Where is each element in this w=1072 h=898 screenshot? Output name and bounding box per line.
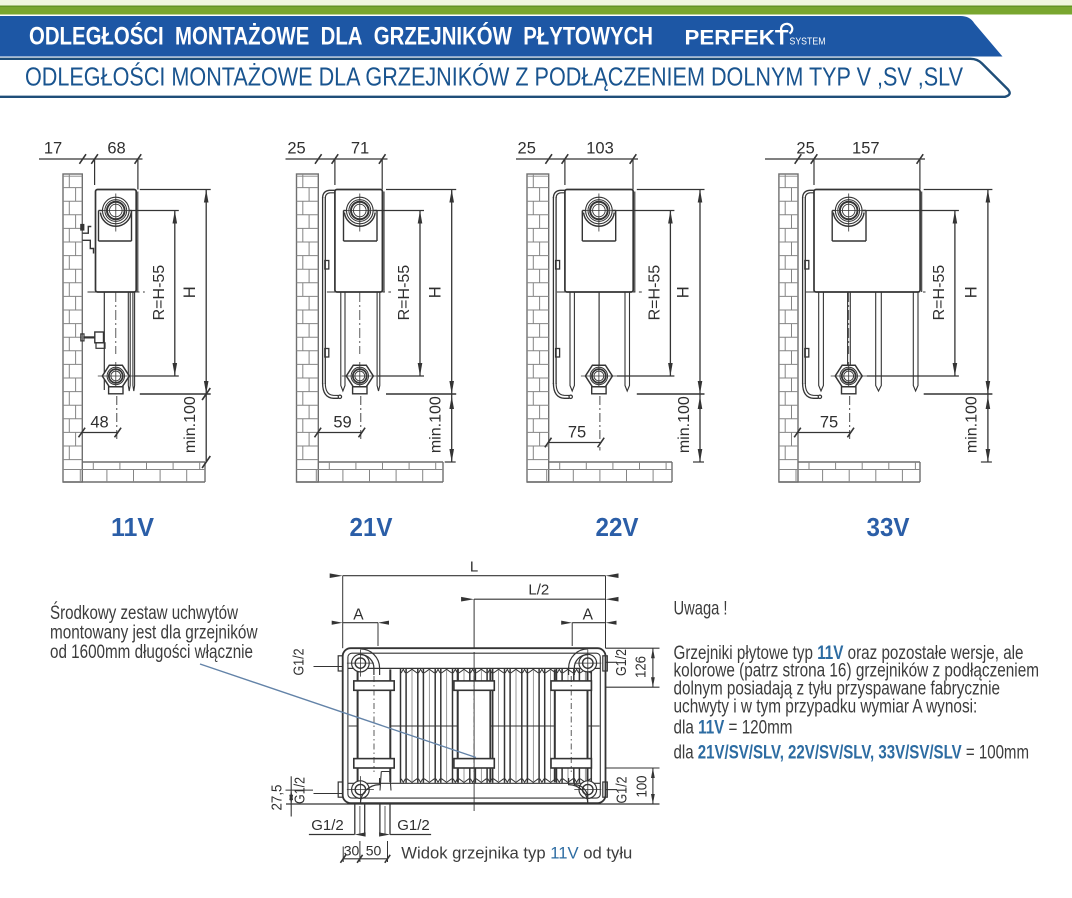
svg-text:ODLEGŁOŚCI MONTAŻOWE DLA GRZEJ: ODLEGŁOŚCI MONTAŻOWE DLA GRZEJNIKÓW Z PO…	[25, 61, 964, 91]
svg-text:A: A	[583, 607, 594, 624]
svg-text:min.100: min.100	[182, 396, 199, 453]
svg-text:G1/2: G1/2	[311, 817, 344, 834]
svg-text:Uwaga !: Uwaga !	[674, 598, 728, 620]
svg-text:50: 50	[366, 843, 382, 859]
svg-text:min.100: min.100	[964, 396, 981, 453]
svg-text:min.100: min.100	[428, 396, 445, 453]
svg-text:48: 48	[90, 414, 108, 432]
svg-text:L: L	[470, 559, 478, 576]
svg-text:27,5: 27,5	[270, 785, 286, 811]
svg-text:H: H	[675, 286, 693, 298]
svg-text:SYSTEM: SYSTEM	[790, 35, 826, 47]
svg-text:11V: 11V	[111, 512, 155, 542]
svg-text:PERFEKT: PERFEKT	[685, 25, 790, 50]
svg-text:71: 71	[351, 140, 369, 158]
svg-text:ODLEGŁOŚCI MONTAŻOWE DLA GR: ODLEGŁOŚCI MONTAŻOWE DLA GRZEJNIKÓW PŁYT…	[29, 20, 653, 50]
svg-text:22V: 22V	[596, 512, 640, 542]
svg-text:68: 68	[107, 140, 125, 158]
svg-text:uchwyty i w tym przypadku wymi: uchwyty i w tym przypadku wymiar A wynos…	[674, 697, 978, 718]
svg-text:75: 75	[820, 414, 838, 432]
svg-text:33V: 33V	[867, 512, 911, 542]
svg-text:H: H	[181, 286, 199, 298]
svg-text:21V: 21V	[350, 512, 394, 542]
svg-text:25: 25	[518, 140, 536, 158]
svg-text:75: 75	[568, 424, 586, 442]
svg-text:157: 157	[852, 140, 880, 158]
svg-text:17: 17	[44, 140, 62, 158]
svg-text:R=H-55: R=H-55	[396, 265, 413, 321]
svg-text:H: H	[963, 286, 981, 298]
svg-text:R=H-55: R=H-55	[931, 265, 948, 321]
svg-text:Środkowy zestaw uchwytów: Środkowy zestaw uchwytów	[50, 602, 238, 624]
svg-text:100: 100	[634, 776, 650, 798]
svg-text:126: 126	[634, 656, 650, 678]
svg-text:dla 11V = 120mm: dla 11V = 120mm	[674, 718, 793, 739]
svg-text:od 1600mm długości włącznie: od 1600mm długości włącznie	[50, 642, 253, 663]
svg-text:G1/2: G1/2	[397, 817, 430, 834]
svg-text:103: 103	[586, 140, 614, 158]
svg-text:H: H	[426, 286, 444, 298]
svg-text:Widok grzejnika typ 11V od tył: Widok grzejnika typ 11V od tyłu	[401, 845, 632, 863]
svg-text:25: 25	[796, 140, 814, 158]
svg-text:30: 30	[344, 843, 360, 859]
svg-text:L/2: L/2	[528, 582, 549, 599]
svg-text:dla 21V/SV/SLV, 22V/SV/SLV, 33: dla 21V/SV/SLV, 22V/SV/SLV, 33V/SV/SLV =…	[674, 743, 1030, 764]
svg-text:G1/2: G1/2	[292, 649, 308, 676]
svg-text:min.100: min.100	[676, 396, 693, 453]
svg-text:R=H-55: R=H-55	[646, 265, 663, 321]
svg-text:59: 59	[333, 414, 351, 432]
svg-text:A: A	[353, 607, 364, 624]
svg-text:R=H-55: R=H-55	[151, 265, 168, 321]
svg-text:25: 25	[287, 140, 305, 158]
svg-text:montowany jest dla grzejników: montowany jest dla grzejników	[50, 623, 258, 644]
